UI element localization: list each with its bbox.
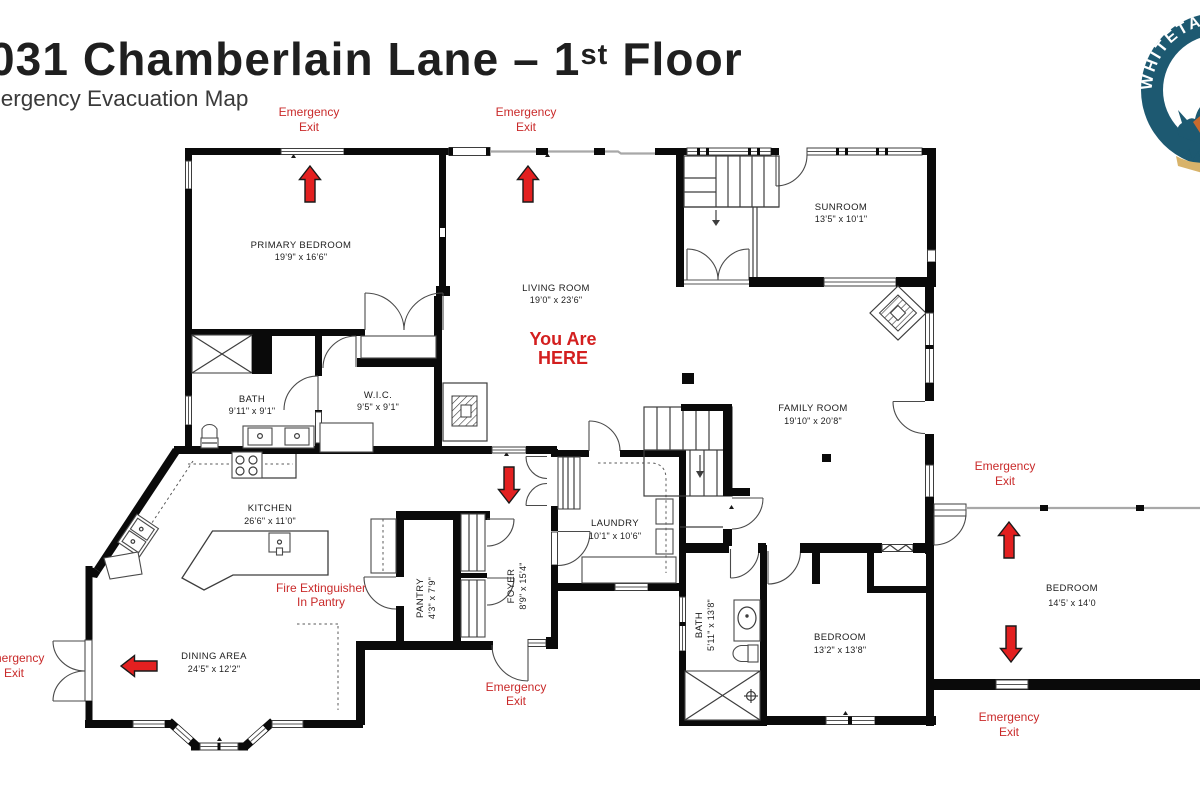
svg-text:Emergency: Emergency — [975, 459, 1036, 473]
svg-text:Exit: Exit — [299, 120, 320, 134]
svg-text:W.I.C.: W.I.C. — [364, 390, 392, 401]
svg-text:4’3" x 7’9": 4’3" x 7’9" — [427, 577, 437, 619]
svg-text:9’5" x 9’1": 9’5" x 9’1" — [357, 402, 399, 412]
svg-text:PRIMARY BEDROOM: PRIMARY BEDROOM — [251, 240, 352, 251]
svg-text:PANTRY: PANTRY — [415, 578, 426, 618]
svg-text:031 Chamberlain Lane – 1st Flo: 031 Chamberlain Lane – 1st Floor — [0, 33, 743, 85]
svg-text:Exit: Exit — [506, 694, 527, 708]
svg-text:24’5" x 12’2": 24’5" x 12’2" — [188, 664, 241, 674]
svg-text:13’5" x 10’1": 13’5" x 10’1" — [815, 214, 868, 224]
svg-text:19’0" x 23’6": 19’0" x 23’6" — [530, 295, 583, 305]
svg-text:Emergency Evacuation Map: Emergency Evacuation Map — [0, 86, 248, 111]
svg-text:14’5’ x 14’0: 14’5’ x 14’0 — [1048, 598, 1096, 608]
svg-text:In Pantry: In Pantry — [297, 595, 345, 609]
svg-text:Emergency: Emergency — [279, 105, 340, 119]
svg-text:10’1" x 10’6": 10’1" x 10’6" — [589, 531, 642, 541]
svg-text:Exit: Exit — [4, 666, 25, 680]
svg-text:13’2" x 13’8": 13’2" x 13’8" — [814, 645, 867, 655]
svg-text:Exit: Exit — [995, 474, 1016, 488]
svg-text:BEDROOM: BEDROOM — [814, 632, 866, 643]
svg-text:19’10" x 20’8": 19’10" x 20’8" — [784, 416, 842, 426]
svg-text:HERE: HERE — [538, 348, 588, 368]
svg-text:Emergency: Emergency — [496, 105, 557, 119]
svg-text:26’6" x 11’0": 26’6" x 11’0" — [244, 516, 296, 526]
svg-text:DINING AREA: DINING AREA — [181, 651, 247, 662]
svg-text:Fire Extinguisher: Fire Extinguisher — [276, 581, 366, 595]
svg-text:FAMILY ROOM: FAMILY ROOM — [778, 403, 848, 414]
svg-text:Exit: Exit — [999, 725, 1020, 739]
svg-text:KITCHEN: KITCHEN — [248, 503, 293, 514]
svg-text:FOYER: FOYER — [506, 569, 517, 604]
svg-text:LIVING ROOM: LIVING ROOM — [522, 283, 590, 294]
svg-text:5’11" x 13’8": 5’11" x 13’8" — [706, 599, 716, 651]
svg-text:8’9" x 15’4": 8’9" x 15’4" — [518, 562, 528, 609]
svg-text:Emergency: Emergency — [0, 651, 44, 665]
svg-text:You Are: You Are — [529, 329, 596, 349]
svg-text:BATH: BATH — [694, 612, 705, 638]
svg-text:19’9" x 16’6": 19’9" x 16’6" — [275, 252, 328, 262]
svg-text:9’11" x 9’1": 9’11" x 9’1" — [229, 406, 276, 416]
svg-text:SUNROOM: SUNROOM — [815, 202, 867, 213]
svg-text:BATH: BATH — [239, 394, 265, 405]
svg-text:Emergency: Emergency — [486, 680, 547, 694]
svg-text:Emergency: Emergency — [979, 710, 1040, 724]
svg-text:BEDROOM: BEDROOM — [1046, 583, 1098, 594]
svg-text:Exit: Exit — [516, 120, 537, 134]
svg-text:LAUNDRY: LAUNDRY — [591, 518, 639, 529]
